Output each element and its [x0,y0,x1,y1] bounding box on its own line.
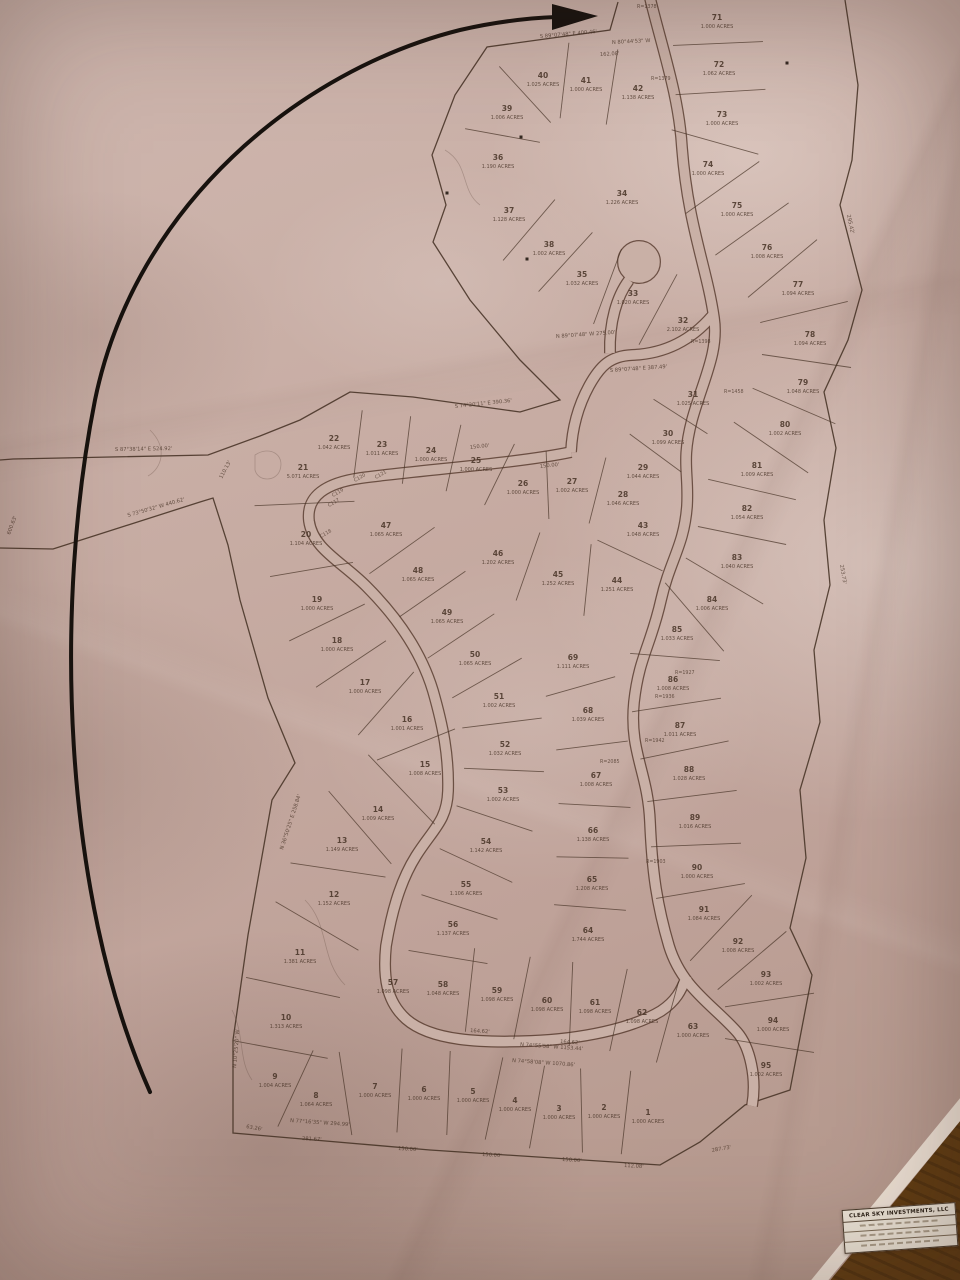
plat-map-photo: 11.000 ACRES21.000 ACRES31.000 ACRES41.0… [0,0,960,1280]
photo-vignette [0,0,960,1280]
